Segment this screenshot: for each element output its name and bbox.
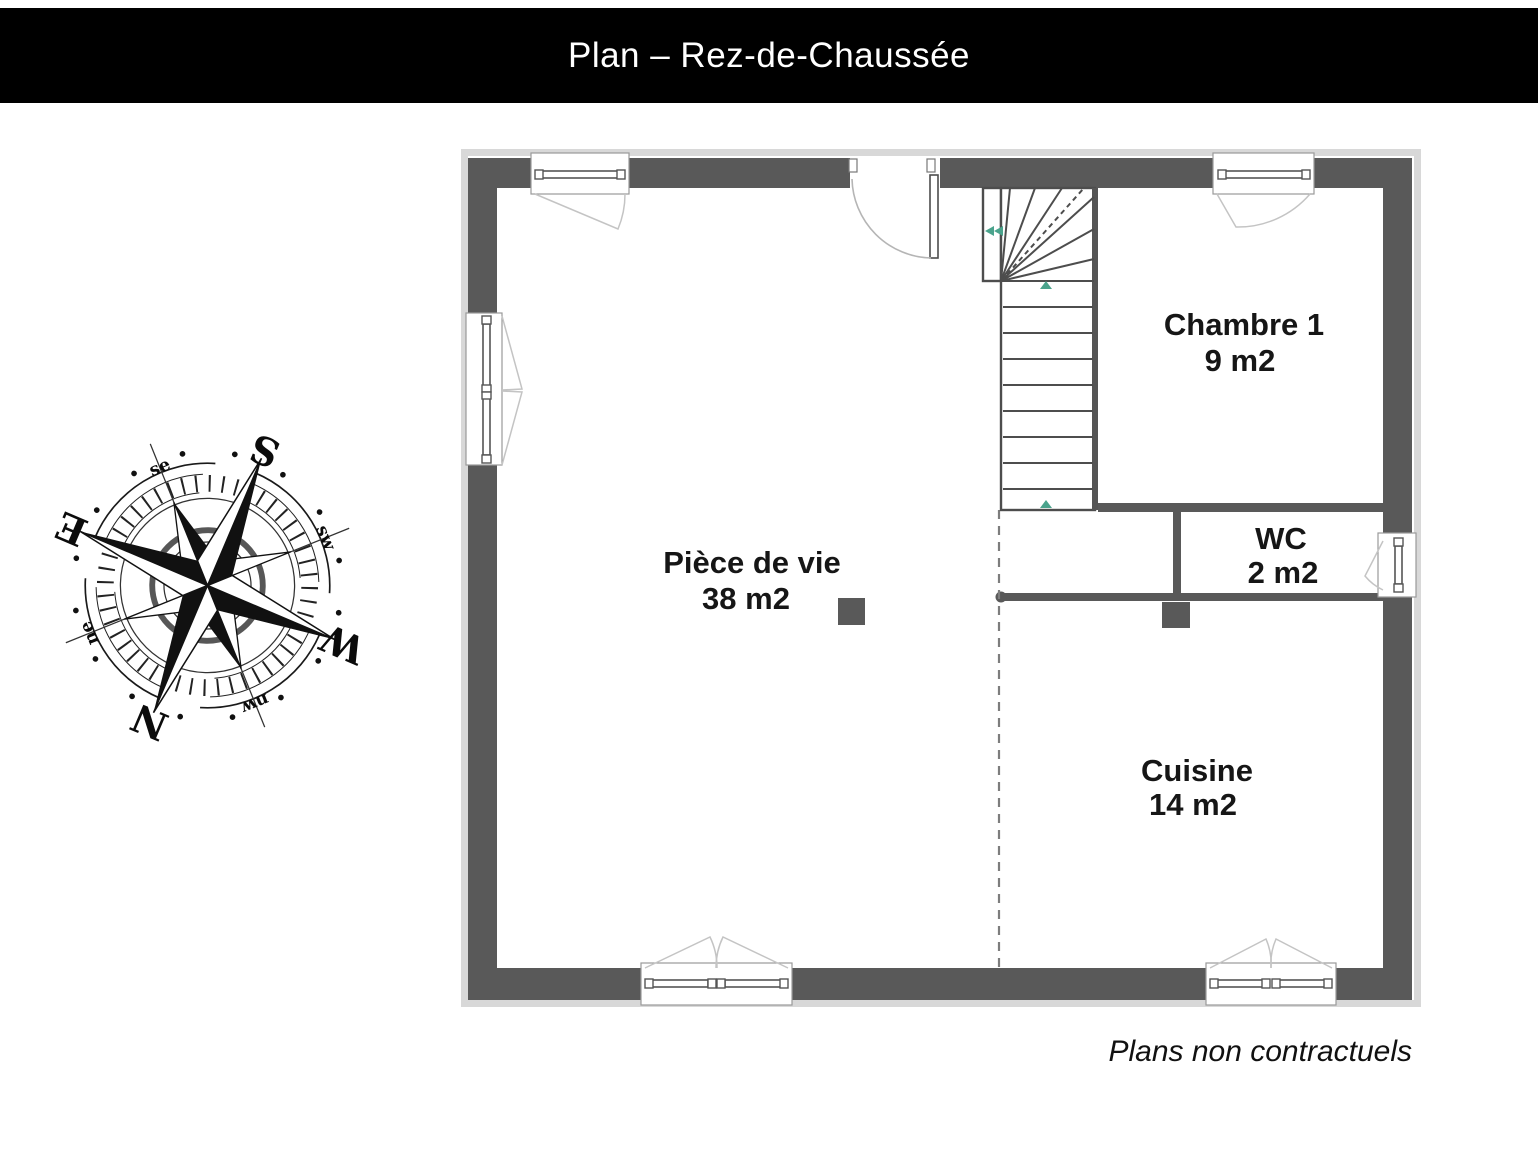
room-label-piece-de-vie: Pièce de vie: [663, 545, 841, 580]
room-area-cuisine: 14 m2: [1149, 787, 1237, 822]
pillar: [1162, 602, 1190, 628]
staircase: [983, 188, 1098, 510]
window-symbol: [466, 313, 522, 465]
window-symbol: [1206, 939, 1336, 1005]
room-chambre-1: Chambre 1 9 m2: [1164, 307, 1324, 378]
compass-label-n: N: [125, 694, 175, 749]
room-label-wc: WC: [1255, 521, 1307, 556]
compass-label-s: S: [243, 424, 286, 476]
window-symbol: [1213, 153, 1314, 227]
room-area-piece-de-vie: 38 m2: [702, 581, 790, 616]
room-area-wc: 2 m2: [1248, 555, 1319, 590]
room-label-chambre-1: Chambre 1: [1164, 307, 1324, 342]
room-piece-de-vie: Pièce de vie 38 m2: [663, 545, 841, 616]
room-area-chambre-1: 9 m2: [1205, 343, 1276, 378]
compass-label-e: E: [50, 501, 95, 554]
floor-plan: Pièce de vie 38 m2 Chambre 1 9 m2 WC 2 m…: [461, 149, 1421, 1007]
room-wc: WC 2 m2: [1248, 521, 1319, 590]
page-title: Plan – Rez-de-Chaussée: [568, 36, 970, 76]
title-bar: Plan – Rez-de-Chaussée: [0, 8, 1538, 103]
window-symbol: [641, 937, 792, 1005]
compass-rose-icon: N E S W ne se sw nw: [40, 418, 375, 753]
compass-cardinal-points: [40, 418, 375, 753]
window-symbol: [1365, 533, 1416, 597]
pillar: [838, 598, 865, 625]
window-symbol: [531, 153, 629, 229]
entry-door-symbol: [849, 158, 940, 258]
disclaimer-text: Plans non contractuels: [992, 1035, 1412, 1069]
compass-label-nw: nw: [238, 689, 273, 719]
room-label-cuisine: Cuisine: [1141, 753, 1253, 788]
room-cuisine: Cuisine 14 m2: [1141, 753, 1253, 822]
compass-label-w: W: [314, 614, 373, 673]
interior-walls: [996, 503, 1384, 603]
